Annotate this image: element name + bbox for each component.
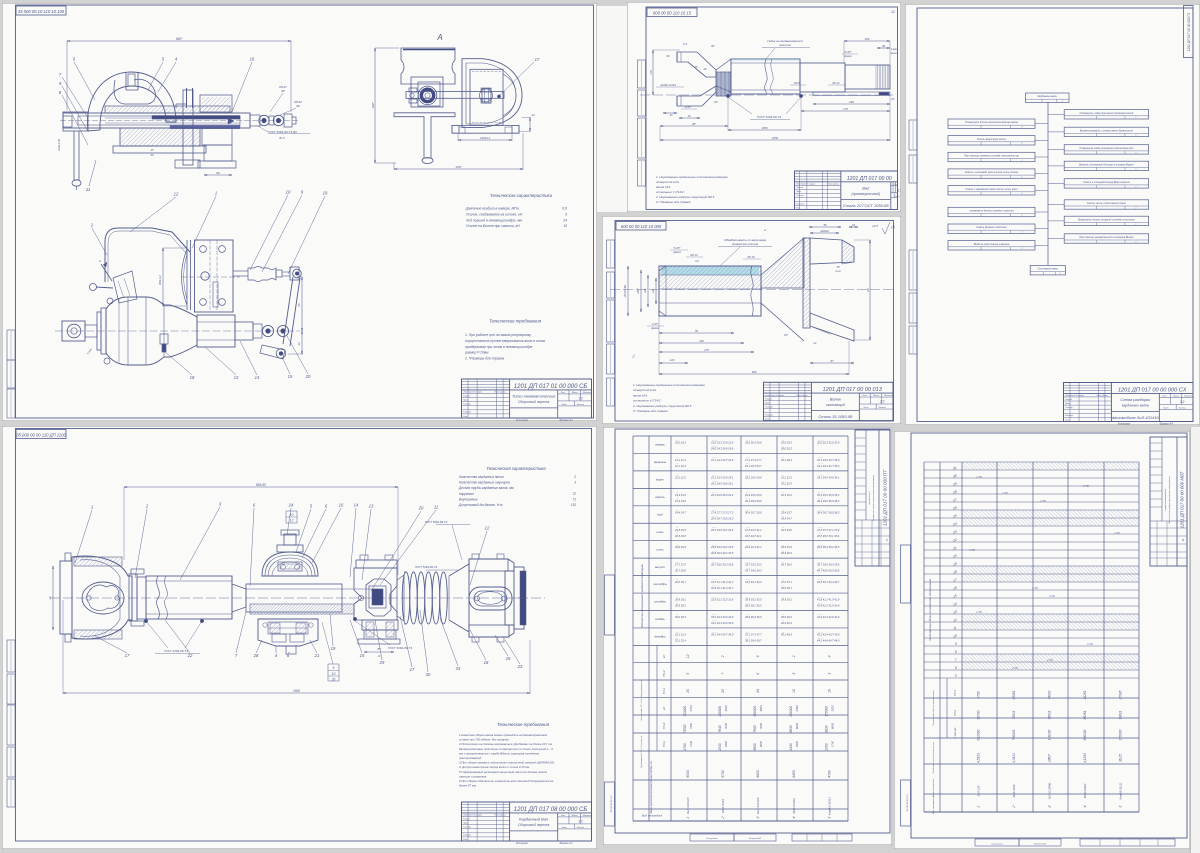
- svg-text:сентябрь: сентябрь: [653, 582, 667, 586]
- svg-text:1: 1: [1021, 127, 1022, 129]
- svg-text:27: 27: [409, 667, 415, 672]
- svg-text:8830: 8830: [825, 725, 829, 732]
- svg-text:Лит.: Лит.: [560, 815, 566, 817]
- svg-text:Количество обслуживаний с разб: Количество обслуживаний с разбивкой по м…: [640, 564, 644, 627]
- svg-text:99611: 99611: [1119, 710, 1123, 719]
- svg-text:1×45°: 1×45°: [652, 322, 659, 326]
- svg-text:25061: 25061: [1012, 690, 1016, 700]
- svg-text:27995: 27995: [1119, 690, 1123, 700]
- svg-text:600 00 00 110 10 15: 600 00 00 110 10 15: [653, 10, 692, 15]
- svg-text:- -: - -: [676, 562, 678, 564]
- svg-text:- -: - -: [676, 440, 678, 442]
- svg-text:- - -: - - -: [746, 597, 750, 599]
- svg-text:14: 14: [354, 503, 359, 508]
- svg-text:3: 3: [828, 673, 832, 675]
- svg-text:автомобиля ЗиЛ-431410: автомобиля ЗиЛ-431410: [1112, 415, 1160, 420]
- svg-text:96011: 96011: [1048, 710, 1052, 719]
- svg-text:кР: кР: [662, 707, 666, 710]
- svg-text:Н.контр.: Н.контр.: [765, 414, 774, 416]
- svg-text:700001: 700001: [1012, 729, 1016, 740]
- svg-text:- -: - -: [676, 463, 678, 465]
- svg-text:фаска: фаска: [673, 250, 681, 254]
- svg-text:Технические требования: Технические требования: [489, 319, 542, 324]
- svg-text:12: 12: [290, 519, 294, 523]
- svg-text:- -: - -: [676, 533, 678, 535]
- svg-text:175: 175: [704, 348, 709, 352]
- svg-text:Т.контр.: Т.контр.: [463, 404, 472, 406]
- svg-text:5730: 5730: [721, 770, 725, 778]
- svg-text:- - - -: - - - -: [712, 579, 717, 581]
- svg-text:отверстий Н14,: отверстий Н14,: [633, 388, 657, 392]
- svg-text:24: 24: [288, 503, 294, 508]
- svg-text:Утв.: Утв.: [765, 418, 770, 420]
- svg-text:9000: 9000: [686, 770, 690, 778]
- svg-text:16: 16: [828, 689, 832, 693]
- svg-text:автомобилей: автомобилей: [868, 491, 871, 505]
- svg-text:9600: 9600: [759, 705, 763, 712]
- svg-text:более 57 мм: более 57 мм: [459, 784, 476, 788]
- svg-text:713000: 713000: [683, 706, 687, 717]
- svg-text:ЗиЛ-4,1(946): ЗиЛ-4,1(946): [1048, 783, 1052, 800]
- svg-text:- -: - -: [782, 614, 784, 616]
- svg-text:- - - -: - - - -: [818, 562, 823, 564]
- svg-text:- - -: - - -: [746, 544, 750, 546]
- svg-text:карданных валов: карданных валов: [1122, 403, 1149, 407]
- svg-text:1: 1: [1021, 143, 1022, 145]
- svg-text:Марка автомобиля: Марка автомобиля: [933, 778, 935, 797]
- svg-text:отвернуть болты опорных пласти: отвернуть болты опорных пластин: [970, 210, 1015, 213]
- svg-text:15: 15: [288, 374, 293, 379]
- svg-text:Т.контр.: Т.контр.: [1065, 407, 1074, 409]
- svg-text:Масса: Масса: [1173, 396, 1180, 398]
- svg-text:Лист: Лист: [862, 407, 868, 409]
- svg-text:Тиски пневматические: Тиски пневматические: [512, 393, 556, 398]
- svg-text:декабрь: декабрь: [654, 635, 666, 639]
- svg-text:Отвернуть гайку крепления подш: Отвернуть гайку крепления подшипника про: [1079, 147, 1134, 150]
- svg-text:R0.16: R0.16: [748, 255, 755, 259]
- svg-text:- -: - -: [782, 440, 784, 442]
- svg-text:Масштаб: Масштаб: [1184, 396, 1194, 398]
- svg-text:ГОСТ 5264-80-Т3: ГОСТ 5264-80-Т3: [388, 646, 412, 650]
- svg-text:2-ТО: 2-ТО: [1031, 587, 1038, 590]
- svg-text:Листов: Листов: [576, 404, 584, 406]
- svg-text:1201 ДП 017 00 00 013: 1201 ДП 017 00 00 013: [823, 387, 883, 393]
- svg-text:18: 18: [484, 660, 489, 665]
- svg-text:230000: 230000: [718, 706, 722, 718]
- svg-text:- -: - -: [782, 446, 784, 448]
- svg-text:Количество ТО и Р в планируемо: Количество ТО и Р в планируемом году: [640, 679, 643, 721]
- svg-text:2530: 2530: [718, 743, 722, 751]
- svg-text:1650: 1650: [772, 136, 779, 140]
- svg-text:- -: - -: [676, 498, 678, 500]
- svg-text:2700: 2700: [689, 705, 693, 713]
- svg-text:ГОСТ 5264-80-Т3: ГОСТ 5264-80-Т3: [757, 115, 781, 119]
- svg-text:R0.5: R0.5: [794, 81, 800, 85]
- svg-text:33: 33: [456, 666, 461, 671]
- svg-text:160: 160: [865, 37, 870, 41]
- svg-text:6: 6: [756, 673, 760, 675]
- svg-text:20: 20: [305, 374, 311, 379]
- svg-text:2: 2: [721, 655, 725, 658]
- svg-text:7640: 7640: [718, 725, 722, 732]
- svg-text:- -: - -: [782, 475, 784, 477]
- svg-text:5×45°: 5×45°: [674, 246, 681, 250]
- svg-text:- - - -: - - - -: [712, 550, 717, 552]
- svg-text:валов h14,: валов h14,: [633, 393, 648, 397]
- svg-text:Снять защитную часть: Снять защитную часть: [977, 138, 1007, 141]
- svg-text:ТО-1: ТО-1: [662, 687, 666, 694]
- svg-text:14: 14: [255, 375, 260, 380]
- svg-text:- -: - -: [782, 620, 784, 622]
- svg-text:Лит.: Лит.: [893, 184, 899, 186]
- svg-text:2: 2: [573, 475, 576, 479]
- svg-text:1: 1: [1135, 207, 1136, 209]
- svg-text:1: 1: [1021, 248, 1022, 250]
- svg-text:⌀42: ⌀42: [652, 288, 655, 293]
- svg-text:150*: 150*: [455, 165, 462, 169]
- svg-text:13: 13: [234, 375, 239, 380]
- svg-text:- -: - -: [676, 638, 678, 640]
- svg-text:612000: 612000: [977, 729, 981, 740]
- svg-text:- - - -: - - - -: [818, 568, 823, 570]
- svg-text:- -: - -: [782, 509, 784, 511]
- svg-text:Допустимый дисбаланс, Н·м: Допустимый дисбаланс, Н·м: [458, 503, 503, 507]
- svg-text:ГОСТ 5264-80-Т3: ГОСТ 5264-80-Т3: [425, 520, 448, 524]
- svg-text:1:2: 1:2: [578, 396, 583, 400]
- svg-text:МАЗ-5334: МАЗ-5334: [1012, 784, 1016, 797]
- svg-text:ТО-1: ТО-1: [662, 740, 666, 747]
- svg-text:Снять часть подшипника опоры: Снять часть подшипника опоры: [1087, 202, 1126, 205]
- svg-text:22: 22: [813, 341, 817, 345]
- svg-text:придерживая при этом в пневмоц: придерживая при этом в пневмоцилиндре: [465, 345, 532, 349]
- svg-text:1201 ДП 017 08 00 000 СБ: 1201 ДП 017 08 00 000 СБ: [514, 807, 588, 813]
- svg-text:6,3: 6,3: [695, 259, 699, 263]
- svg-text:электросваркой: электросваркой: [459, 756, 482, 760]
- svg-text:Снять с шлицевой части вилку ш: Снять с шлицевой части вилку шлиц скольж: [965, 171, 1019, 174]
- svg-text:- - - -: - - - -: [712, 475, 717, 477]
- svg-text:График тех-сборки технического: График тех-сборки технического обслужива…: [872, 474, 875, 521]
- svg-text:Копировал: Копировал: [992, 844, 1004, 846]
- svg-text:- - -: - - -: [746, 579, 750, 581]
- svg-text:30: 30: [426, 672, 431, 677]
- svg-text:120: 120: [670, 358, 675, 362]
- svg-text:Вs 5: Вs 5: [279, 136, 285, 140]
- svg-text:90700: 90700: [977, 710, 981, 719]
- svg-text:- -: - -: [782, 527, 784, 529]
- svg-text:Выпрессовывать с упора снять б: Выпрессовывать с упора снять балансир оп: [1080, 129, 1134, 132]
- svg-text:#8: #8: [281, 89, 285, 93]
- svg-text:6450: 6450: [792, 770, 796, 778]
- svg-text:Техническая характеристика: Техническая характеристика: [490, 193, 553, 198]
- svg-text:Лит.: Лит.: [560, 392, 566, 394]
- svg-text:январь: январь: [654, 443, 665, 447]
- svg-text:1:2: 1:2: [880, 400, 885, 404]
- svg-text:- - - -: - - - -: [712, 446, 717, 448]
- svg-text:Утв.: Утв.: [463, 416, 468, 418]
- svg-text:1201 ДП 017 01 00 000 СБ: 1201 ДП 017 01 00 000 СБ: [514, 384, 588, 390]
- svg-text:- -: - -: [782, 585, 784, 587]
- svg-text:диаметра шлицов: диаметра шлицов: [732, 242, 759, 246]
- svg-text:4,5101: 4,5101: [977, 753, 981, 763]
- svg-text:1-ТО: 1-ТО: [969, 549, 975, 552]
- svg-text:1. Неуказанные предельные откл: 1. Неуказанные предельные отклонения раз…: [633, 383, 705, 387]
- svg-text:- - - -: - - - -: [818, 533, 823, 535]
- svg-text:0,6: 0,6: [562, 207, 567, 211]
- svg-text:апрель: апрель: [655, 495, 665, 499]
- svg-text:26: 26: [331, 678, 336, 682]
- svg-text:Копировал: Копировал: [1118, 422, 1131, 425]
- svg-text:4,3121: 4,3121: [1012, 753, 1016, 763]
- svg-text:остальных ± IT14/2: остальных ± IT14/2: [656, 190, 684, 194]
- svg-text:1: 1: [1135, 241, 1136, 243]
- svg-text:- - - -: - - - -: [712, 585, 717, 587]
- svg-text:ноябрь: ноябрь: [655, 617, 665, 621]
- svg-text:7130: 7130: [689, 740, 693, 747]
- svg-text:25: 25: [505, 656, 511, 661]
- svg-text:скользящий: скользящий: [826, 403, 845, 407]
- svg-text:2. Неуказанные радиусы скругле: 2. Неуказанные радиусы скруглений R0.5: [655, 195, 715, 199]
- svg-text:1:2: 1:2: [898, 188, 901, 192]
- svg-text:Утв.: Утв.: [463, 839, 468, 841]
- svg-text:7: 7: [721, 673, 725, 675]
- svg-text:Сталь 20 ГОСТ 1050-88: Сталь 20 ГОСТ 1050-88: [843, 203, 889, 208]
- svg-text:- - - -: - - - -: [712, 562, 717, 564]
- svg-text:отверстий Н14,: отверстий Н14,: [656, 180, 680, 184]
- svg-text:Количество карданных шарниров: Количество карданных шарниров: [459, 481, 510, 485]
- svg-text:2200: 2200: [831, 705, 835, 713]
- svg-text:2. *Размеры для справок: 2. *Размеры для справок: [464, 357, 505, 361]
- svg-text:1201 ДП 017 00 00: 1201 ДП 017 00 00: [847, 176, 892, 182]
- svg-text:- -: - -: [676, 579, 678, 581]
- svg-text:Т.контр.: Т.контр.: [765, 406, 774, 408]
- svg-text:1×45°: 1×45°: [685, 105, 692, 109]
- svg-text:МАЗ-54322: МАЗ-54322: [1083, 783, 1087, 798]
- svg-text:8630: 8630: [795, 722, 799, 729]
- svg-text:4760: 4760: [828, 770, 832, 778]
- svg-text:- -: - -: [676, 527, 678, 529]
- svg-text:170000: 170000: [1119, 729, 1123, 740]
- svg-text:R5: R5: [714, 100, 718, 104]
- svg-text:1: 1: [1060, 273, 1061, 275]
- svg-text:1. При работе цен на зажим рег: 1. При работе цен на зажим регулировку: [465, 333, 531, 337]
- svg-text:Разраб.: Разраб.: [463, 395, 471, 397]
- svg-text:Лист: Лист: [561, 404, 567, 406]
- svg-text:2-ТО: 2-ТО: [1046, 659, 1053, 662]
- svg-text:Карданный Вал: Карданный Вал: [519, 816, 549, 821]
- svg-text:Копировал: Копировал: [516, 842, 529, 845]
- svg-text:13: 13: [369, 504, 374, 509]
- svg-text:- - - -: - - - -: [818, 544, 823, 546]
- svg-text:- - -: - - -: [746, 509, 750, 511]
- svg-text:трещин и разрывов: трещин и разрывов: [459, 774, 487, 778]
- svg-text:- -: - -: [782, 597, 784, 599]
- svg-text:- - - -: - - - -: [818, 463, 823, 465]
- svg-text:- - -: - - -: [746, 562, 750, 564]
- svg-text:R0.12: R0.12: [833, 81, 840, 85]
- svg-text:Числа месяца и Виды техническо: Числа месяца и Виды технического обслужи…: [928, 578, 932, 641]
- svg-text:- - -: - - -: [746, 632, 750, 634]
- svg-text:МАЗ-54322: МАЗ-54322: [792, 798, 796, 814]
- svg-text:72: 72: [572, 492, 576, 496]
- svg-text:2. Неуказанные радиусы скругле: 2. Неуказанные радиусы скруглений R0.5: [632, 404, 692, 408]
- svg-text:12: 12: [686, 654, 690, 658]
- svg-text:- -: - -: [782, 550, 784, 552]
- svg-text:Отвернуть болты крепления флан: Отвернуть болты крепления фланца валов: [965, 121, 1019, 124]
- svg-text:станке при 750 об/мин. без наг: станке при 750 об/мин. без нагрузки: [459, 738, 509, 742]
- svg-text:1: 1: [1021, 160, 1022, 162]
- svg-text:- - - -: - - - -: [712, 544, 717, 546]
- svg-text:Изм Лист № докум.: Изм Лист № докум.: [464, 814, 483, 817]
- svg-text:65: 65: [866, 288, 870, 292]
- svg-text:Трудоемкость ТО и Р в году, чн: Трудоемкость ТО и Р в году, чн: [640, 735, 643, 769]
- svg-text:35 000 00 00 110 ДП 1100: 35 000 00 00 110 ДП 1100: [16, 432, 66, 437]
- svg-text:3.* Размеры для справок: 3.* Размеры для справок: [633, 409, 668, 413]
- svg-text:Сталь 35 1050-88: Сталь 35 1050-88: [818, 414, 853, 419]
- svg-text:ЗиЛ-431410: ЗиЛ-431410: [686, 797, 690, 814]
- svg-text:- - -: - - -: [746, 440, 750, 442]
- svg-text:1-ТО: 1-ТО: [1087, 643, 1093, 646]
- svg-text:(√): (√): [891, 225, 895, 229]
- svg-text:Техническая характеристика: Техническая характеристика: [486, 466, 546, 471]
- svg-text:август: август: [655, 565, 666, 569]
- svg-text:4 шл: 4 шл: [835, 270, 841, 273]
- svg-text:8630: 8630: [789, 725, 793, 732]
- svg-text:1. Неуказанные предельные откл: 1. Неуказанные предельные отклонения раз…: [656, 175, 728, 179]
- svg-text:7350: 7350: [689, 722, 693, 729]
- svg-text:2 фас: 2 фас: [890, 48, 898, 51]
- svg-text:Сборочный чертеж: Сборочный чертеж: [518, 400, 550, 404]
- svg-text:Пров.: Пров.: [796, 191, 802, 193]
- svg-text:17: 17: [125, 653, 130, 658]
- svg-text:ГОСТ 5264-80-Т3: ГОСТ 5264-80-Т3: [164, 649, 188, 653]
- svg-text:Формат А1: Формат А1: [559, 842, 573, 845]
- svg-text:R0.13: R0.13: [691, 253, 698, 257]
- svg-text:- - - -: - - - -: [712, 509, 717, 511]
- svg-text:Ø63-0.2: Ø63-0.2: [158, 275, 162, 286]
- svg-text:1201 ДП 017 00 00 000 СХ: 1201 ДП 017 00 00 000 СХ: [1118, 387, 1187, 393]
- svg-text:- - - -: - - - -: [712, 515, 717, 517]
- svg-text:5.Гофрированный резиновый защи: 5.Гофрированный резиновый защитный чехол…: [459, 770, 548, 774]
- svg-text:Масса: Масса: [572, 815, 579, 817]
- svg-text:- - -: - - -: [746, 568, 750, 570]
- svg-text:октябрь: октябрь: [654, 600, 667, 604]
- svg-text:75011: 75011: [1012, 710, 1016, 719]
- svg-text:Сборочный чертеж: Сборочный чертеж: [518, 823, 550, 827]
- svg-text:- -: - -: [676, 492, 678, 494]
- svg-text:Изм Лист № докум.: Изм Лист № докум.: [1066, 394, 1085, 397]
- svg-text:4: 4: [828, 655, 832, 657]
- svg-text:- - - -: - - - -: [818, 440, 823, 442]
- svg-text:- - - -: - - - -: [712, 614, 717, 616]
- svg-text:1: 1: [1021, 193, 1022, 195]
- svg-text:- - - -: - - - -: [818, 498, 823, 500]
- svg-text:Длинна трубы карданных валов,: Длинна трубы карданных валов, мм: [458, 486, 514, 490]
- svg-text:86261: 86261: [1083, 710, 1087, 719]
- svg-text:- - - -: - - - -: [712, 632, 717, 634]
- svg-text:- - - -: - - - -: [818, 597, 823, 599]
- svg-text:1: 1: [1021, 232, 1022, 234]
- svg-text:- -: - -: [782, 515, 784, 517]
- svg-text:10: 10: [332, 672, 336, 676]
- svg-text:- -: - -: [782, 579, 784, 581]
- svg-text:2861*: 2861*: [1048, 753, 1052, 763]
- svg-text:640*: 640*: [176, 37, 183, 41]
- svg-text:Снять с шлицевой конца Вала са: Снять с шлицевой конца Вала сальник: [1083, 181, 1130, 184]
- svg-text:Давление воздуха в камере, МПа: Давление воздуха в камере, МПа: [465, 207, 519, 211]
- svg-text:- -: - -: [676, 475, 678, 477]
- svg-text:Листов: Листов: [576, 827, 584, 829]
- svg-text:6.При сборке обеспечить слежно: 6.При сборке обеспечить слежность всех д…: [459, 779, 554, 783]
- svg-text:Среднесуточный пробег, км: Среднесуточный пробег, км: [650, 761, 653, 792]
- svg-text:16: 16: [852, 223, 856, 227]
- svg-text:⌀30ks6: ⌀30ks6: [820, 229, 829, 233]
- svg-text:Копировал: Копировал: [516, 419, 529, 421]
- svg-text:24261: 24261: [1083, 690, 1087, 700]
- svg-text:15: 15: [563, 224, 567, 228]
- svg-text:175: 175: [649, 70, 653, 75]
- svg-text:- - - -: - - - -: [818, 579, 823, 581]
- svg-text:28: 28: [253, 653, 259, 658]
- svg-text:⌀100е-0.023: ⌀100е-0.023: [660, 83, 676, 87]
- svg-text:КамАЗ-55111: КамАЗ-55111: [1119, 782, 1123, 799]
- svg-text:2.Подшипники не должны нагрева: 2.Подшипники не должны нагреваться. Дисб…: [458, 742, 552, 746]
- svg-text:КамАЗ-55111: КамАЗ-55111: [828, 797, 832, 815]
- svg-text:2: 2: [792, 655, 796, 658]
- svg-text:866-50: 866-50: [256, 483, 266, 487]
- svg-text:февраль: февраль: [654, 460, 667, 464]
- svg-text:Н.контр.: Н.контр.: [1065, 415, 1074, 417]
- svg-text:- - - -: - - - -: [818, 638, 823, 640]
- svg-text:20: 20: [686, 689, 690, 694]
- svg-text:3: 3: [574, 481, 576, 485]
- svg-text:100*: 100*: [371, 102, 375, 109]
- svg-text:прессом: прессом: [779, 43, 791, 47]
- svg-text:Изм Лист № докум.: Изм Лист № докум.: [464, 391, 483, 394]
- svg-text:При помощи универсального съем: При помощи универсального съемника Выпре: [1079, 236, 1134, 239]
- svg-text:Ход поршня в пневмоцилиндре, м: Ход поршня в пневмоцилиндре, мм: [465, 218, 523, 222]
- svg-text:R5: R5: [784, 333, 788, 337]
- svg-text:56: 56: [823, 223, 827, 227]
- svg-text:170000: 170000: [825, 706, 829, 717]
- svg-text:1-ТО: 1-ТО: [976, 476, 982, 479]
- svg-text:- - - -: - - - -: [818, 632, 823, 634]
- svg-text:2900: 2900: [795, 740, 799, 748]
- svg-text:(промежуточный): (промежуточный): [851, 192, 880, 196]
- svg-text:24: 24: [756, 689, 760, 694]
- svg-text:Внутренние: Внутренние: [459, 497, 478, 501]
- svg-text:1:2: 1:2: [578, 819, 583, 823]
- svg-text:- -: - -: [676, 614, 678, 616]
- svg-text:- -: - -: [782, 492, 784, 494]
- svg-text:фаски: фаски: [891, 52, 899, 55]
- svg-text:Разраб.: Разраб.: [463, 818, 471, 820]
- svg-text:140: 140: [699, 339, 704, 343]
- svg-text:3.При сборке смазать подшипник: 3.При сборке смазать подшипники пластичн…: [459, 761, 555, 765]
- svg-text:1: 1: [1021, 177, 1022, 179]
- svg-text:12: 12: [174, 192, 179, 197]
- svg-text:- -: - -: [782, 457, 784, 459]
- svg-text:июль: июль: [656, 547, 664, 551]
- svg-text:8830: 8830: [831, 722, 835, 729]
- svg-text:600 00 00 110 10 005: 600 00 00 110 10 005: [621, 224, 662, 229]
- svg-text:2700: 2700: [683, 743, 687, 751]
- svg-text:Подп. Дата: Подп. Дата: [495, 814, 507, 817]
- svg-text:7600: 7600: [753, 725, 757, 732]
- svg-text:67: 67: [830, 359, 834, 363]
- svg-text:19: 19: [323, 191, 328, 196]
- svg-text:Схема разборки: Схема разборки: [1120, 397, 1151, 402]
- svg-text:110: 110: [571, 503, 576, 507]
